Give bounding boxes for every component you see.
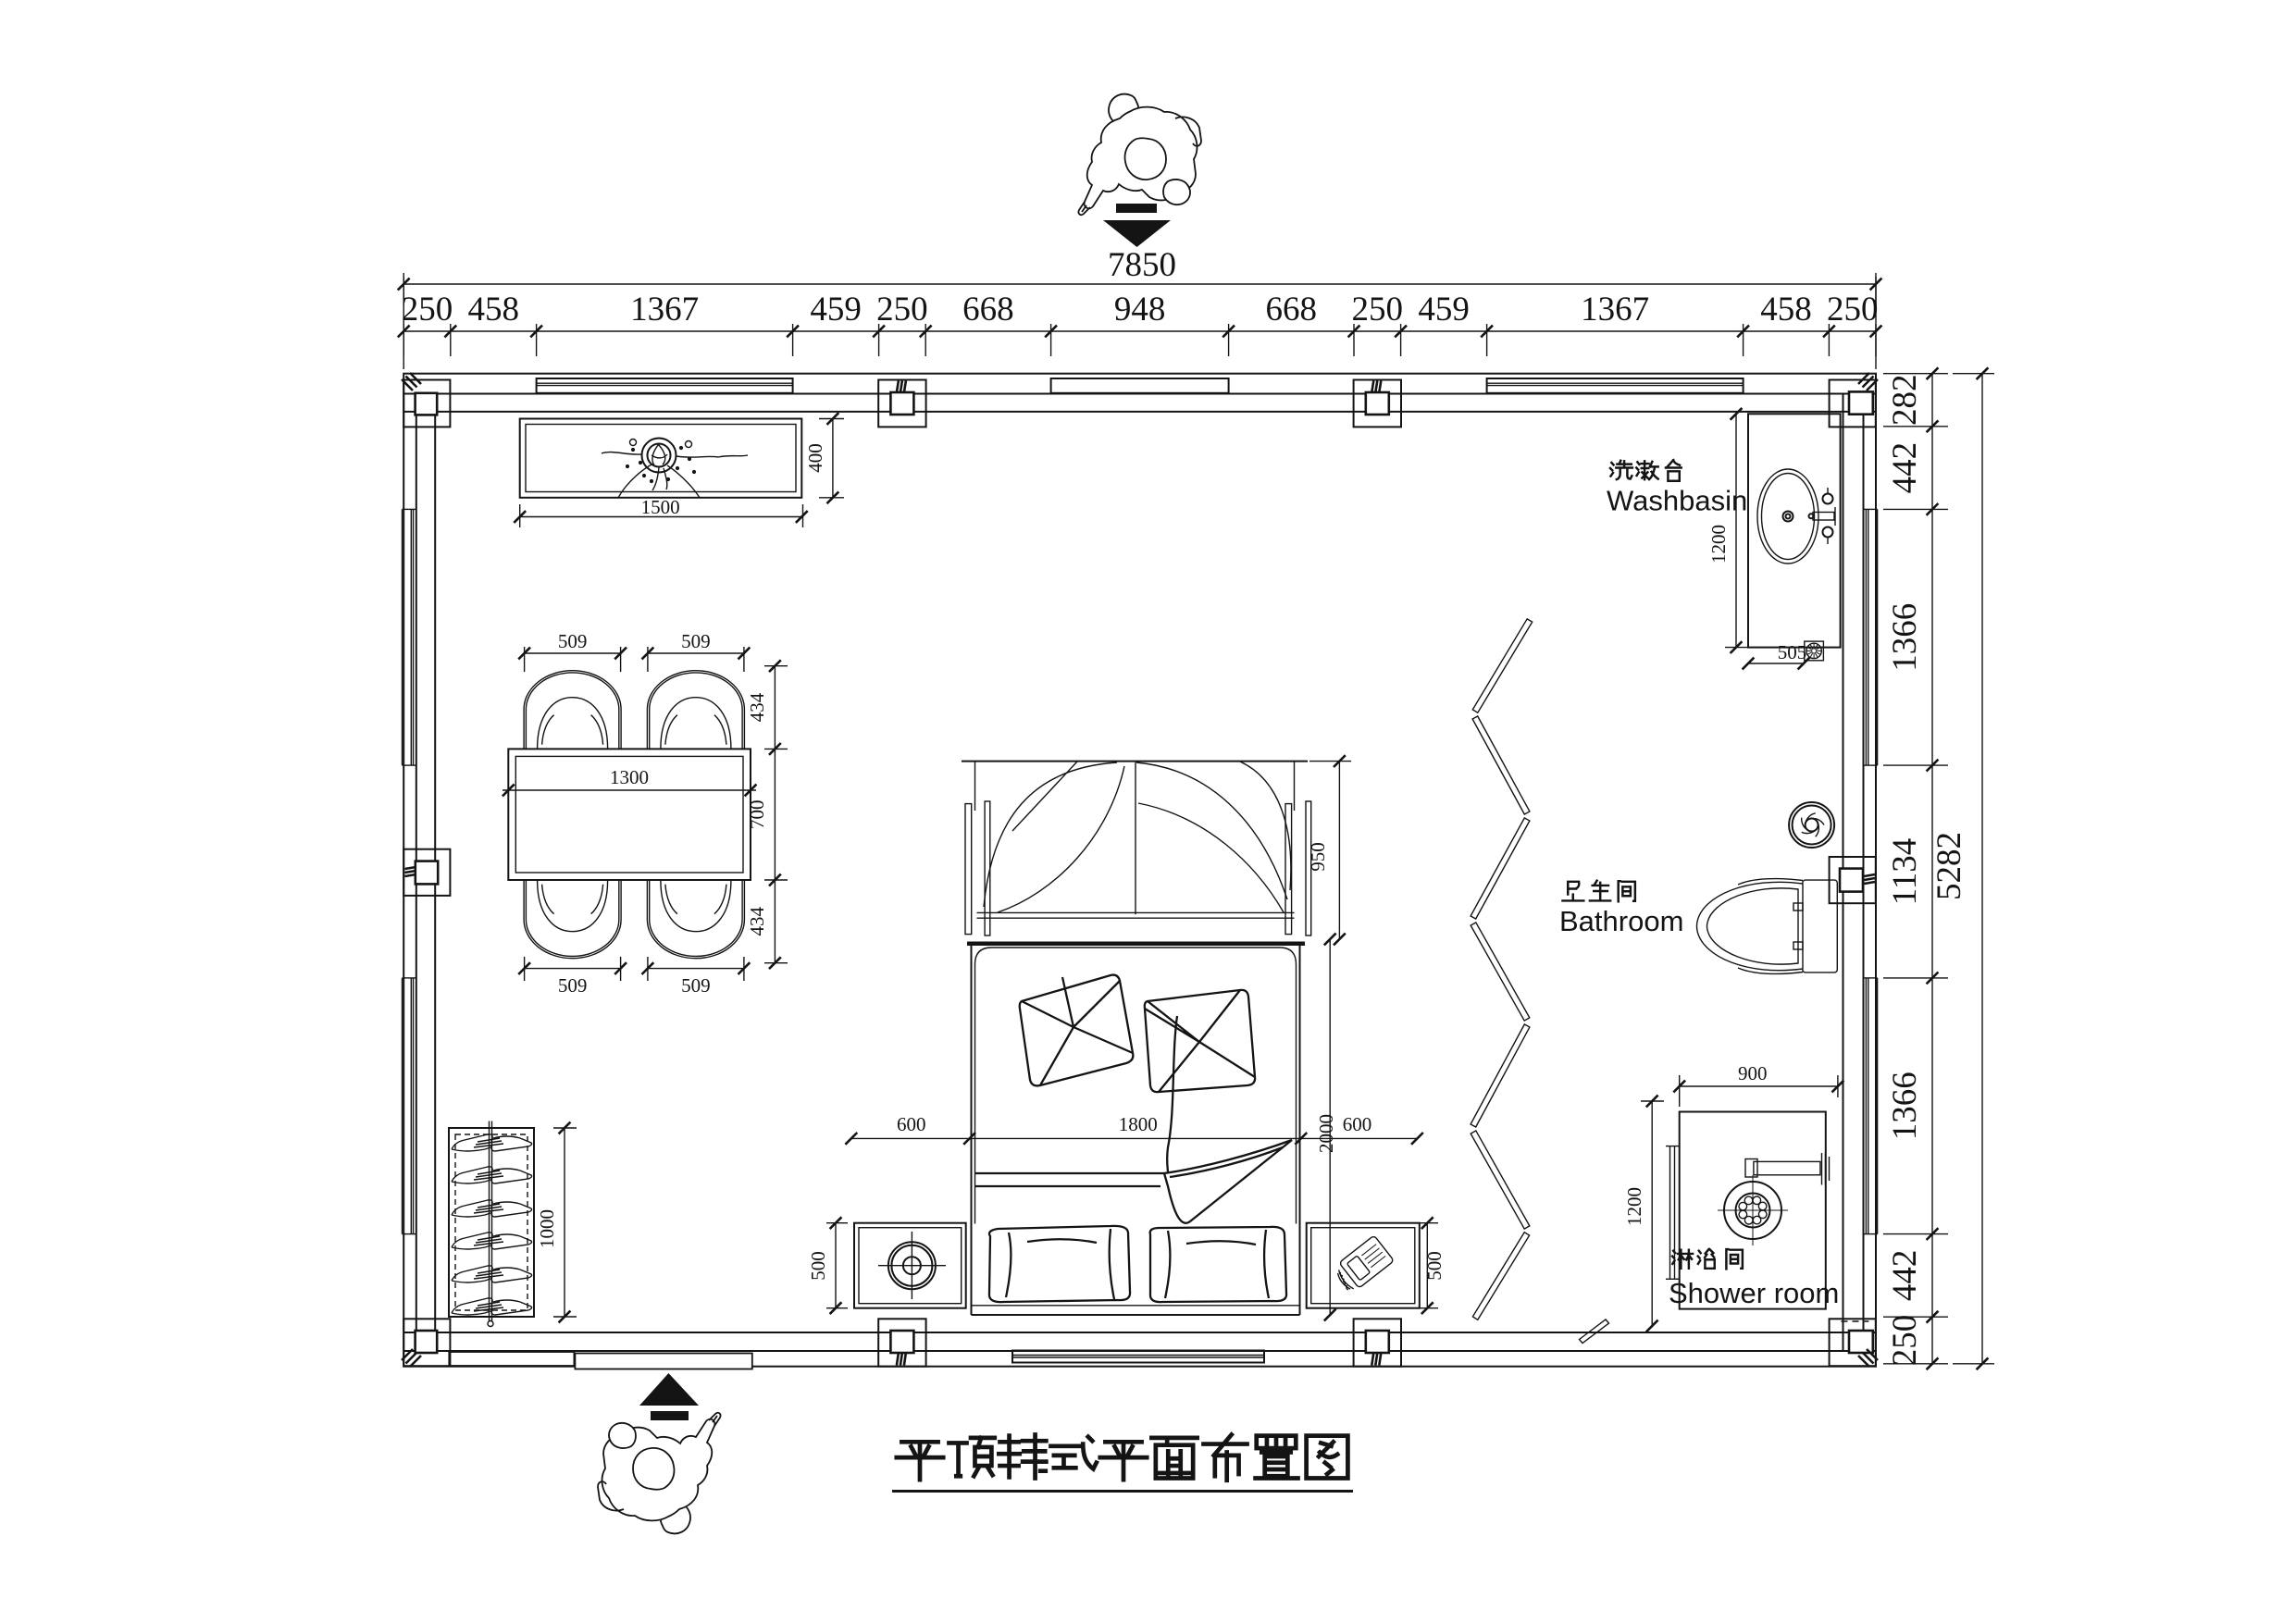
- svg-text:250: 250: [1827, 291, 1879, 328]
- svg-text:1366: 1366: [1886, 1072, 1924, 1140]
- svg-text:400: 400: [804, 443, 826, 473]
- svg-text:700: 700: [746, 799, 768, 829]
- svg-text:2000: 2000: [1315, 1114, 1337, 1153]
- svg-text:600: 600: [897, 1113, 926, 1135]
- svg-text:458: 458: [1760, 291, 1812, 328]
- svg-text:1200: 1200: [1707, 525, 1730, 564]
- svg-text:509: 509: [681, 974, 711, 997]
- svg-text:500: 500: [807, 1251, 829, 1281]
- svg-text:250: 250: [402, 291, 453, 328]
- svg-text:Bathroom: Bathroom: [1559, 905, 1683, 937]
- svg-text:1134: 1134: [1886, 838, 1924, 906]
- svg-text:950: 950: [1307, 842, 1329, 872]
- svg-text:434: 434: [746, 692, 768, 722]
- svg-text:458: 458: [467, 291, 519, 328]
- svg-text:500: 500: [1423, 1251, 1446, 1281]
- svg-text:1300: 1300: [610, 766, 649, 788]
- svg-text:600: 600: [1343, 1113, 1372, 1135]
- svg-text:1367: 1367: [1581, 291, 1649, 328]
- svg-text:1800: 1800: [1119, 1113, 1158, 1135]
- svg-text:1500: 1500: [641, 496, 680, 518]
- svg-text:668: 668: [1266, 291, 1318, 328]
- svg-text:948: 948: [1114, 291, 1166, 328]
- svg-text:1366: 1366: [1886, 603, 1924, 672]
- svg-text:250: 250: [1352, 291, 1404, 328]
- svg-text:5282: 5282: [1930, 832, 1968, 900]
- svg-text:668: 668: [962, 291, 1014, 328]
- svg-text:509: 509: [558, 974, 588, 997]
- svg-text:442: 442: [1886, 1250, 1924, 1302]
- svg-text:250: 250: [1886, 1315, 1924, 1367]
- svg-text:459: 459: [1418, 291, 1470, 328]
- svg-text:Shower room: Shower room: [1669, 1277, 1839, 1309]
- svg-text:250: 250: [876, 291, 928, 328]
- svg-text:7850: 7850: [1108, 246, 1176, 284]
- svg-text:459: 459: [810, 291, 862, 328]
- svg-text:1000: 1000: [536, 1209, 558, 1248]
- svg-text:Washbasin: Washbasin: [1607, 485, 1747, 517]
- svg-text:505: 505: [1778, 641, 1807, 663]
- svg-text:1200: 1200: [1623, 1187, 1645, 1226]
- svg-text:434: 434: [746, 907, 768, 936]
- svg-text:442: 442: [1886, 442, 1924, 493]
- svg-text:509: 509: [558, 630, 588, 652]
- svg-text:282: 282: [1886, 374, 1924, 426]
- svg-text:900: 900: [1738, 1062, 1768, 1084]
- svg-text:1367: 1367: [630, 291, 699, 328]
- svg-text:509: 509: [681, 630, 711, 652]
